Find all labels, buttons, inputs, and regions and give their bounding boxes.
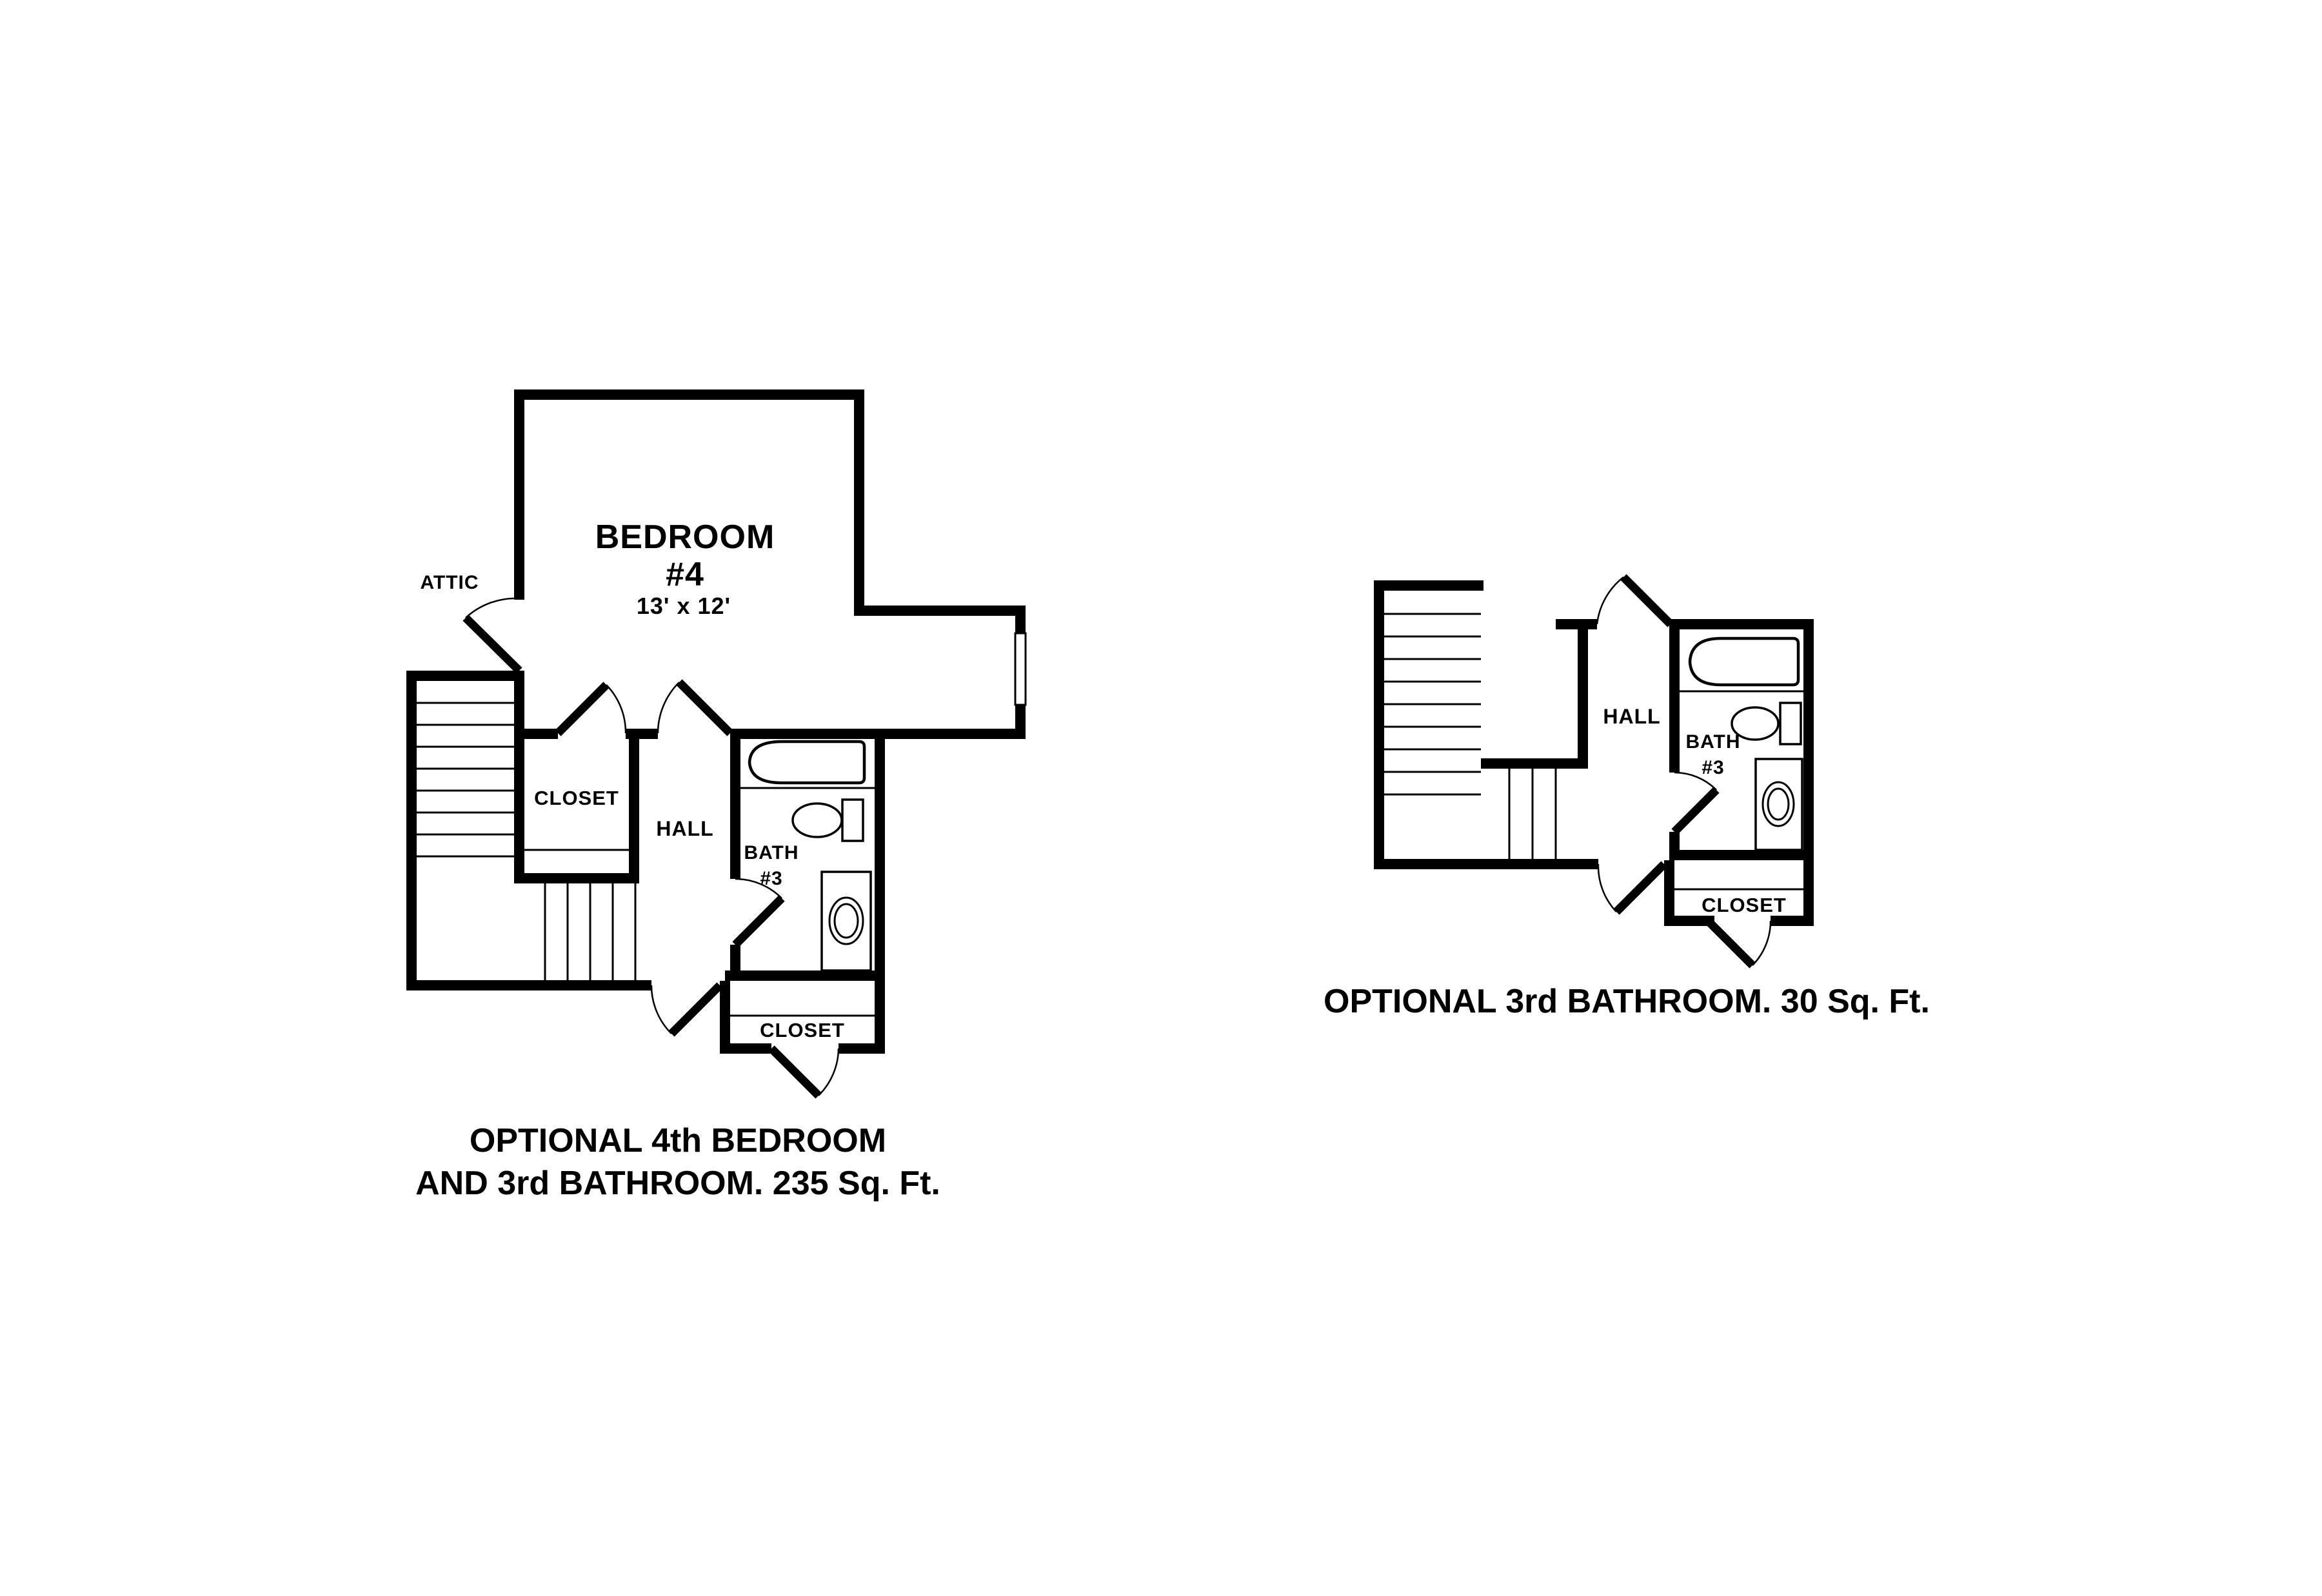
bath-door-leaf [735,898,782,945]
bath2-door-leaf [1674,790,1716,832]
bedroom-wall-left-upper [514,389,524,600]
stairs2-lower-treads [1509,769,1556,859]
closet-lower-wall-left [720,981,730,1054]
hall2-top-door-leaf [1623,577,1671,624]
room-label-hall2: HALL [1603,705,1660,728]
stairs2-inner-wall-vertical [1578,629,1588,769]
left-plan-caption-line1: OPTIONAL 4th BEDROOM [470,1122,886,1159]
right-plan-caption: OPTIONAL 3rd BATHROOM. 30 Sq. Ft. [1324,983,1930,1020]
bedroom-step-wall [854,606,1026,616]
toilet2-tank [1780,703,1801,744]
closet-upper-door-arc [606,685,626,733]
bath2-wall-right [1803,619,1814,925]
attic-door-leaf [466,618,519,671]
closet-upper-door-leaf [558,685,606,733]
floor-plan-right: HALL BATH #3 CLOSET OPTIONAL 3rd BATHROO… [1324,577,1930,1020]
closet3-door-leaf [1708,921,1752,965]
bathtub [749,742,864,783]
room-label-bath-line1: BATH [744,842,799,863]
bath2-wall-top [1669,619,1814,629]
stairs2-inner-wall-stub [1556,619,1597,629]
hall2-top-door-arc [1597,577,1623,624]
room-label-bath2-line2: #3 [1702,757,1724,778]
stairs-wall-bottom [406,980,651,990]
room-label-bedroom: BEDROOM [595,518,775,556]
bedroom-wall-right [854,389,864,616]
bath-wall-bottom [725,970,885,981]
closet3-wall-bottom-b [1771,916,1814,926]
window [1015,633,1026,705]
floor-plan-page: ATTIC BEDROOM #4 13' x 12' CLOSET HALL B… [0,0,2322,1596]
hall2-bottom-door-arc [1598,864,1616,912]
stairs-wall-left [406,671,417,990]
toilet-tank [842,800,863,841]
closet3-door-arc [1752,921,1771,965]
room-label-bath-line2: #3 [760,868,782,889]
room-label-closet3: CLOSET [1702,894,1787,916]
extension-wall-right-upper [1015,616,1026,633]
closet-upper-wall-bottom [514,873,639,883]
stairs2-wall-top [1374,580,1483,591]
hall-entry-door-leaf [671,985,720,1034]
room-label-bedroom-number: #4 [666,556,704,593]
closet-upper-wall-right [629,729,639,883]
closet-lower-door-arc [819,1049,838,1096]
floor-plan-canvas: ATTIC BEDROOM #4 13' x 12' CLOSET HALL B… [0,0,2322,1596]
stairs2-upper-treads [1384,614,1481,794]
closet-lower-door-leaf [771,1049,819,1096]
bath-wall-right [875,729,885,981]
closet-lower-wall-bottom-a [720,1043,771,1054]
stairs2-wall-left [1374,580,1384,869]
room-label-attic: ATTIC [420,572,479,593]
bathtub2 [1690,638,1798,685]
hall2-bottom-door-leaf [1616,864,1664,912]
stairs-upper-treads [417,703,514,856]
stairs2-inner-wall-bottom [1481,758,1588,769]
left-plan-caption-line2: AND 3rd BATHROOM. 235 Sq. Ft. [415,1165,940,1202]
bedroom-wall-top [514,389,864,400]
bath2-wall-left-upper [1669,619,1680,773]
bedroom-hall-door-leaf [679,682,730,733]
stairs-wall-top [406,671,524,681]
closet3-wall-left [1664,860,1674,925]
bedroom-wall-bottom-seg1 [514,729,558,739]
bedroom-wall-left-lower [514,671,524,883]
room-label-closet-upper: CLOSET [534,787,619,809]
room-label-bath2-line1: BATH [1685,731,1740,753]
bath2-wall-bottom [1669,850,1803,860]
hall-entry-door-arc [651,985,671,1034]
toilet-bowl [793,803,842,837]
stairs-lower-treads [545,883,635,980]
stairs2-wall-bottom [1374,859,1598,869]
closet-lower-wall-right [875,981,885,1054]
room-label-closet-lower: CLOSET [760,1019,845,1041]
bedroom-hall-door-arc [658,682,679,733]
closet-lower-wall-bottom-b [838,1043,885,1054]
room-label-bedroom-dims: 13' x 12' [637,593,731,619]
floor-plan-left: ATTIC BEDROOM #4 13' x 12' CLOSET HALL B… [406,389,1026,1202]
bath-wall-left-upper [730,729,740,879]
room-label-hall: HALL [656,817,713,840]
attic-door-arc [466,598,519,618]
